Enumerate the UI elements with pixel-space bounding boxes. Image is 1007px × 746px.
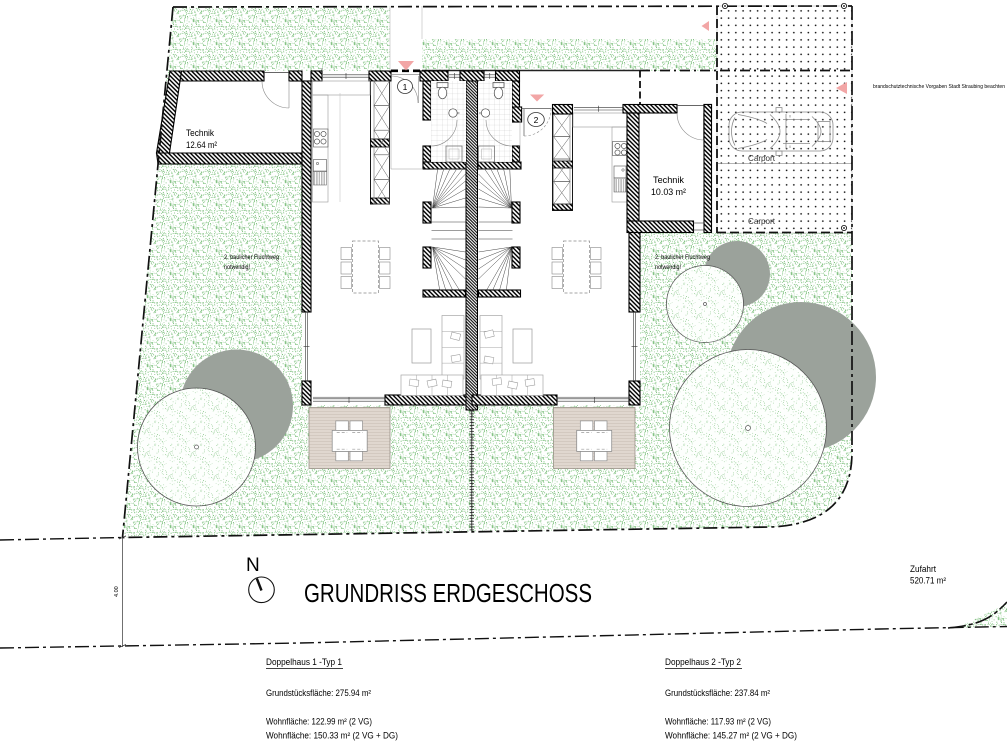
svg-text:notwendig!: notwendig! [224,264,250,271]
svg-text:N: N [246,555,260,576]
svg-text:2. baulicher Fluchtweg: 2. baulicher Fluchtweg [224,254,279,261]
svg-text:2. baulicher Fluchtweg: 2. baulicher Fluchtweg [655,254,710,261]
svg-text:Wohnfläche: 117.93 m² (2 VG): Wohnfläche: 117.93 m² (2 VG) [665,717,771,727]
svg-text:Zufahrt: Zufahrt [910,564,936,574]
svg-text:Doppelhaus 1 -Typ 1: Doppelhaus 1 -Typ 1 [266,657,342,667]
svg-text:GRUNDRISS ERDGESCHOSS: GRUNDRISS ERDGESCHOSS [304,580,592,608]
svg-text:520.71 m²: 520.71 m² [910,576,946,586]
svg-text:10.03 m²: 10.03 m² [651,187,686,197]
svg-text:1: 1 [403,82,408,92]
svg-text:Carport: Carport [748,154,776,163]
svg-text:Carport: Carport [748,217,776,226]
svg-text:4.00: 4.00 [114,586,120,597]
svg-text:notwendig!: notwendig! [655,264,681,271]
svg-text:12.64 m²: 12.64 m² [186,140,217,150]
svg-text:Wohnfläche: 145.27 m² (2 VG +: Wohnfläche: 145.27 m² (2 VG + DG) [665,731,797,741]
svg-text:Wohnfläche: 150.33 m² (2 VG +: Wohnfläche: 150.33 m² (2 VG + DG) [266,731,398,741]
svg-text:Grundstücksfläche: 237.84 m²: Grundstücksfläche: 237.84 m² [665,688,770,698]
svg-text:Doppelhaus 2 -Typ 2: Doppelhaus 2 -Typ 2 [665,657,741,667]
svg-text:Technik: Technik [653,175,684,185]
svg-text:2: 2 [534,115,539,125]
svg-text:Technik: Technik [186,128,214,138]
svg-text:Grundstücksfläche: 275.94 m²: Grundstücksfläche: 275.94 m² [266,688,371,698]
svg-text:Wohnfläche: 122.99 m² (2 VG): Wohnfläche: 122.99 m² (2 VG) [266,717,372,727]
svg-text:brandschutztechnische Vorgaben: brandschutztechnische Vorgaben Stadt Str… [873,84,1005,90]
